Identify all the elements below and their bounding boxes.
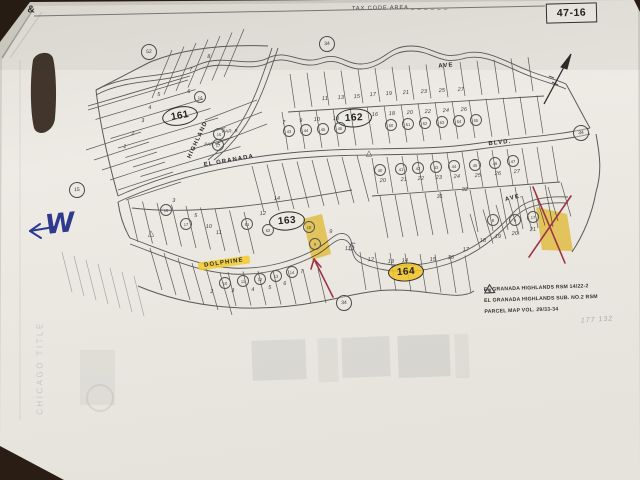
lot-number: 12: [368, 257, 375, 263]
lot-number: 9: [299, 118, 303, 124]
street-name-label: BLVD.: [488, 139, 512, 147]
parcel-id-circle: 13: [270, 270, 282, 282]
parcel-id-circle: 62: [419, 117, 431, 129]
parcel-id-circle: 17: [527, 211, 539, 223]
parcel-id-circle: 8: [487, 214, 499, 226]
parcel-id-circle: 46: [489, 157, 501, 169]
parcel-id-circle: 63: [436, 116, 448, 128]
block-number-oval: 161: [161, 104, 200, 129]
lot-number: 11: [345, 246, 351, 252]
lot-number: 27: [458, 87, 465, 93]
parcel-id-circle: 40: [374, 164, 386, 176]
lot-number: 26: [461, 107, 468, 113]
parcel-id-circle: 41: [395, 163, 407, 175]
lot-number: 16: [448, 255, 455, 261]
map-legend: 1 EL GRANADA HIGHLANDS RSM 14/22-2 2 EL …: [483, 280, 598, 317]
street-name-label: HIGHLAND: [187, 120, 210, 159]
parcel-id-circle: 64: [453, 115, 465, 127]
survey-triangle-icon: △: [148, 228, 154, 237]
lot-number: 7: [282, 120, 286, 126]
legend-text-3: PARCEL MAP VOL. 29/33-34: [484, 306, 558, 315]
lot-number: 11: [216, 230, 222, 236]
parcel-id-circle: 11: [237, 275, 249, 287]
lot-number: 24: [454, 174, 461, 180]
lot-number: 5: [157, 92, 161, 98]
parcel-id-circle: 9: [509, 214, 521, 226]
page-number: 47-16: [557, 7, 587, 20]
survey-triangle-icon: △: [366, 148, 372, 157]
photo-of-parcel-map: & TAX CODE AREA _ _ _ _ _ _ 47-16 W 5 17…: [0, 0, 640, 480]
lot-number: 15: [354, 94, 361, 100]
lot-number: 27: [514, 169, 521, 175]
page-number-box: 47-16: [546, 2, 598, 23]
pencil-note: 177 132: [581, 315, 614, 324]
lot-number: 16: [372, 112, 379, 118]
lot-number: 12: [260, 211, 267, 217]
lot-number: 15: [430, 257, 437, 263]
bleed-through-stamp-text: CHICAGO TITLE: [36, 321, 45, 415]
lot-number: 25: [475, 173, 482, 179]
parcel-id-circle: 65: [470, 114, 482, 126]
map-reference-circle: 52: [141, 44, 158, 61]
lot-number: 21: [403, 90, 410, 96]
lot-number: PAR. B: [222, 128, 238, 134]
street-name-label: AVE.: [505, 193, 524, 203]
label-layer: & TAX CODE AREA _ _ _ _ _ _ 47-16 W 5 17…: [0, 0, 640, 480]
lot-number: 32: [462, 187, 469, 193]
ampersand-mark: &: [27, 5, 34, 16]
lot-number: 23: [436, 175, 443, 181]
parcel-id-circle: 61: [241, 218, 253, 230]
lot-number: PAR. A: [204, 141, 220, 147]
lot-number: 23: [421, 89, 428, 95]
lot-number: 7: [300, 269, 304, 275]
lot-number: 20: [512, 231, 519, 237]
lot-number: 2: [210, 289, 214, 295]
parcel-id-circle: 60: [385, 119, 397, 131]
street-name-label: EL GRANADA: [203, 154, 254, 169]
lot-number: 2: [131, 131, 135, 137]
lot-number: 11: [322, 96, 328, 102]
parcel-id-circle: 45: [469, 159, 481, 171]
lot-number: 18: [480, 238, 487, 244]
parcel-id-circle: 43: [430, 161, 442, 173]
parcel-id-circle: 45: [317, 123, 329, 135]
parcel-id-circle: 62: [262, 224, 274, 236]
parcel-id-circle: 12: [254, 273, 266, 285]
lot-number: 9: [329, 229, 333, 235]
lot-number: 24: [443, 108, 450, 114]
parcel-id-circle: 43: [283, 125, 295, 137]
lot-number: 10: [206, 224, 213, 230]
lot-number: 17: [370, 92, 377, 98]
lot-number: 17: [463, 247, 470, 253]
lot-number: 18: [389, 111, 396, 117]
parcel-id-circle: 17: [180, 218, 192, 230]
lot-number: 22: [418, 176, 425, 182]
lot-number: 1: [123, 144, 127, 150]
parcel-id-circle: 14: [286, 266, 298, 278]
lot-number: 10: [314, 117, 321, 123]
tax-code-area-label: TAX CODE AREA _ _ _ _ _ _: [352, 4, 448, 12]
parcel-id-circle: 42: [412, 162, 424, 174]
lot-number: 3: [141, 118, 145, 124]
lot-number: 8: [207, 54, 211, 60]
legend-triangle-icon-3: 3: [483, 284, 495, 294]
lot-number: 26: [495, 171, 502, 177]
lot-number: 21: [401, 177, 408, 183]
lot-number: 25: [439, 88, 446, 94]
parcel-id-circle: 61: [402, 118, 414, 130]
handwritten-west-note: W: [44, 207, 77, 241]
lot-number: 4: [251, 287, 255, 293]
lot-number: 5: [268, 285, 272, 291]
lot-number: 19: [386, 91, 393, 97]
lot-number: 3: [231, 288, 235, 294]
parcel-id-circle: 46: [334, 122, 346, 134]
lot-number: 13: [388, 259, 395, 265]
lot-number: 20: [380, 178, 387, 184]
map-reference-circle: 15: [69, 182, 86, 199]
parcel-id-circle: 16: [160, 204, 172, 216]
street-name-label: DOLPHINE: [198, 255, 250, 270]
tax-code-text: TAX CODE AREA: [352, 5, 409, 12]
parcel-id-circle: 14: [194, 91, 206, 103]
lot-number: 6: [283, 281, 287, 287]
lot-number: 3: [172, 198, 176, 204]
map-reference-circle: 34: [319, 36, 336, 53]
parcel-id-circle: 10: [219, 277, 231, 289]
street-name-label: AVE: [438, 62, 454, 69]
lot-number: 14: [402, 258, 409, 264]
lot-number: 4: [148, 105, 152, 111]
lot-number: 6: [187, 89, 191, 95]
lot-number: 19: [495, 234, 502, 240]
lot-number: 20: [407, 110, 414, 116]
lot-number: 13: [333, 116, 340, 122]
parcel-id-circle: 47: [507, 155, 519, 167]
parcel-id-circle: 44: [448, 160, 460, 172]
map-reference-circle: 34: [573, 125, 590, 142]
svg-text:3: 3: [488, 288, 491, 294]
lot-number: 7: [189, 67, 193, 73]
lot-number: 5: [194, 213, 198, 219]
map-reference-circle: 34: [336, 295, 353, 312]
lot-number: 22: [425, 109, 432, 115]
lot-number: 13: [338, 95, 345, 101]
parcel-id-circle: 10: [303, 221, 315, 233]
tax-code-dashes: _ _ _ _ _ _: [411, 4, 448, 11]
parcel-id-circle: 44: [300, 124, 312, 136]
lot-number: 31: [437, 194, 444, 200]
lot-number: 14: [274, 196, 281, 202]
lot-number: 21: [530, 227, 537, 233]
parcel-id-circle: 9: [309, 238, 321, 250]
